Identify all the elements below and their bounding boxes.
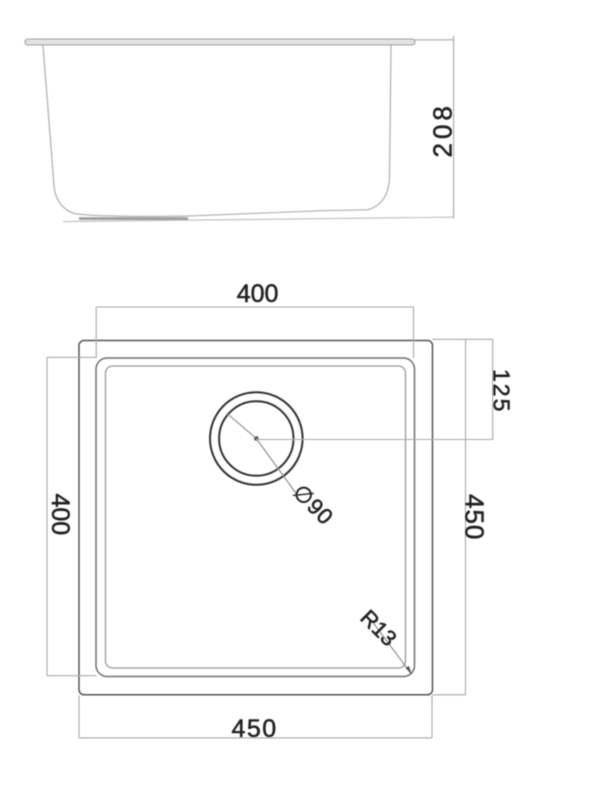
svg-text:400: 400 xyxy=(46,494,74,536)
svg-text:∅90: ∅90 xyxy=(288,479,339,530)
svg-text:208: 208 xyxy=(428,102,458,157)
svg-text:400: 400 xyxy=(237,280,279,308)
svg-text:125: 125 xyxy=(489,369,515,413)
svg-text:450: 450 xyxy=(232,715,278,743)
svg-text:R13: R13 xyxy=(355,605,401,651)
svg-text:450: 450 xyxy=(460,494,490,540)
